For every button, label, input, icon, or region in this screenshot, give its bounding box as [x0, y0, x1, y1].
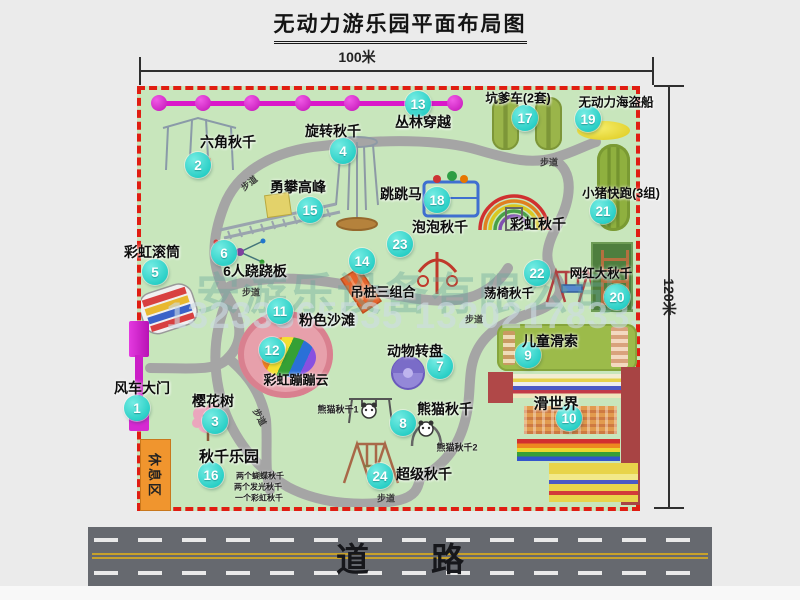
panda-swing-1-icon: [349, 399, 392, 423]
road-label: 道路: [88, 527, 712, 586]
slide-world-block-left: [488, 372, 513, 403]
zipline-dot-0: [151, 95, 167, 111]
pig-run-track: [597, 144, 630, 231]
super-swing-icon: [344, 444, 398, 483]
rainbow-swing-icon: [480, 196, 548, 230]
jump-horse-icon: [424, 171, 478, 216]
kids-zipline-ladder-left-icon: [503, 331, 515, 365]
kengdie-car-track-2: [535, 97, 562, 150]
seesaw-icon: [214, 239, 266, 266]
bottom-strip: [0, 586, 800, 600]
road: 道路: [88, 527, 712, 586]
zipline-dot-1: [195, 95, 211, 111]
zipline-dot-2: [244, 95, 260, 111]
hexagon-swing-icon: [163, 118, 236, 170]
windmill-gate-top: [129, 321, 149, 357]
windmill-gate-bottom: [129, 407, 149, 431]
pirate-ship-icon: [577, 121, 630, 140]
zipline-dot-4: [344, 95, 360, 111]
sakura-tree-icon: [192, 403, 222, 441]
big-swing-ladder-icon: [601, 250, 629, 305]
zipline-dot-5: [407, 95, 423, 111]
carousel-swing-icon: [336, 137, 378, 230]
slide-world-stripes: [513, 374, 621, 398]
kids-zipline-ladder-right-icon: [611, 327, 628, 367]
slide-world-rainbow-band: [517, 439, 620, 461]
rest-area-label: 休息区: [146, 452, 165, 497]
windmill-gate-stem: [135, 355, 143, 409]
animal-turntable-icon: [392, 357, 424, 389]
cloud-highlight: [264, 339, 286, 354]
kengdie-car-track-1: [492, 97, 519, 150]
screenshot-root: 无动力游乐园平面布局图 100米 120米: [0, 0, 800, 600]
park-graphics: [0, 0, 800, 600]
zipline-dot-3: [295, 95, 311, 111]
bubble-swing-icon: [418, 252, 457, 294]
slide-world-orange-band: [524, 406, 617, 434]
panda-swing-2-icon: [412, 421, 441, 447]
climbing-bridge-icon: [220, 192, 340, 239]
slide-world-yellow-band: [549, 463, 638, 502]
zipline-dot-6: [447, 95, 463, 111]
rest-area-box: 休息区: [140, 439, 171, 511]
